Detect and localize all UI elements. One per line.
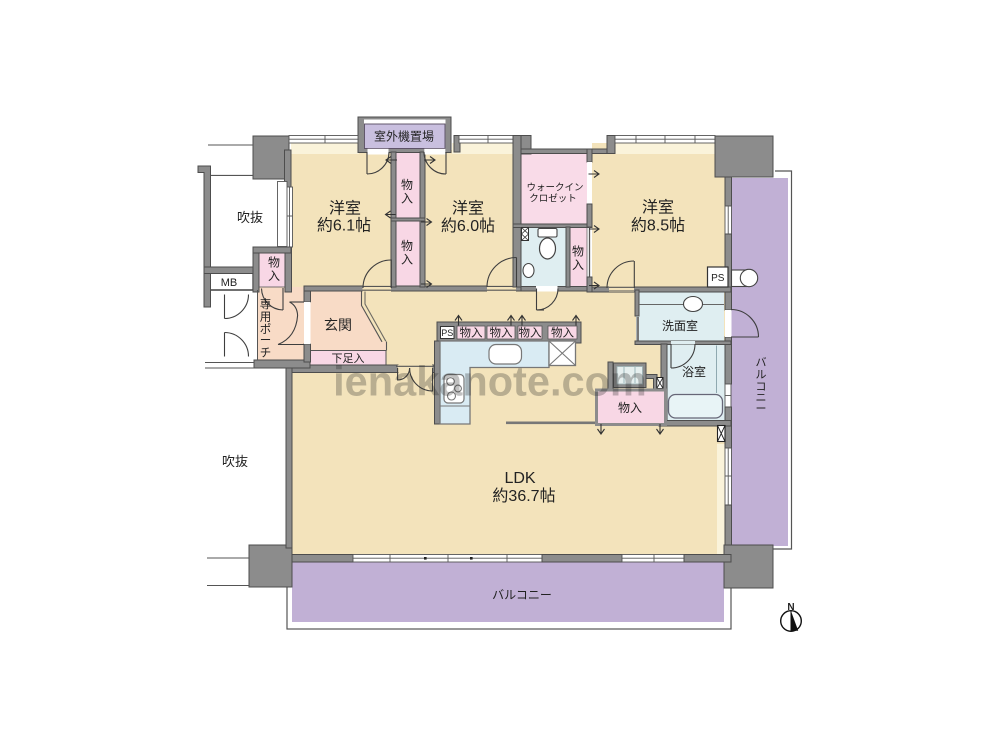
svg-text:洗面室: 洗面室 <box>662 318 698 333</box>
svg-text:物入: 物入 <box>572 245 584 273</box>
svg-text:LDK: LDK <box>504 470 535 487</box>
svg-text:洋室: 洋室 <box>452 200 484 218</box>
svg-text:約8.5帖: 約8.5帖 <box>631 217 685 235</box>
svg-text:約6.1帖: 約6.1帖 <box>317 217 371 235</box>
svg-text:物入: 物入 <box>519 326 542 340</box>
svg-text:ienakanote.com: ienakanote.com <box>333 358 647 405</box>
svg-text:室外機置場: 室外機置場 <box>374 129 434 144</box>
svg-text:物入: 物入 <box>460 326 483 340</box>
svg-text:専用ポーチ: 専用ポーチ <box>260 298 272 360</box>
svg-text:玄関: 玄関 <box>324 317 352 333</box>
svg-text:約6.0帖: 約6.0帖 <box>441 217 495 235</box>
svg-text:PS: PS <box>711 273 725 284</box>
svg-text:物入: 物入 <box>401 178 413 206</box>
svg-text:PS: PS <box>441 328 453 338</box>
svg-text:N: N <box>787 602 794 613</box>
svg-text:吹抜: 吹抜 <box>222 454 248 469</box>
svg-text:洋室: 洋室 <box>329 200 361 218</box>
svg-text:MB: MB <box>221 277 238 289</box>
svg-text:物入: 物入 <box>551 326 574 340</box>
svg-text:物入: 物入 <box>490 326 513 340</box>
svg-text:物入: 物入 <box>268 256 280 284</box>
svg-text:吹抜: 吹抜 <box>237 210 263 225</box>
svg-text:バルコニー: バルコニー <box>756 356 767 415</box>
svg-text:ウォークイン: ウォークイン <box>526 183 583 194</box>
svg-text:洋室: 洋室 <box>642 199 674 217</box>
svg-text:約36.7帖: 約36.7帖 <box>492 487 555 505</box>
svg-text:バルコニー: バルコニー <box>492 588 552 602</box>
svg-text:浴室: 浴室 <box>682 364 706 379</box>
svg-text:物入: 物入 <box>401 239 413 267</box>
svg-text:クロゼット: クロゼット <box>529 193 577 205</box>
